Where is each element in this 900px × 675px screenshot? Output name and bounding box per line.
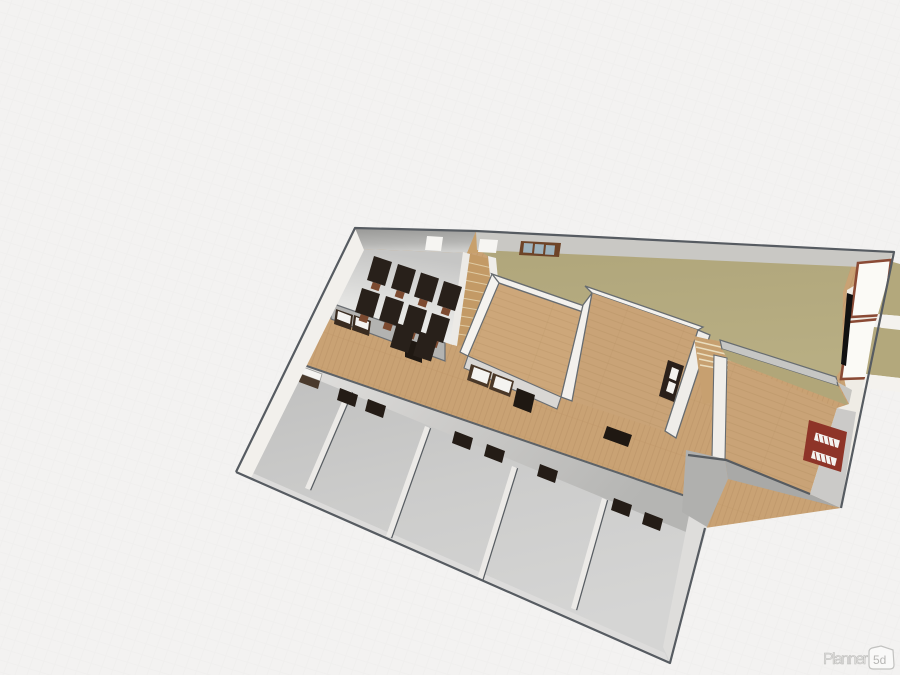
svg-text:5d: 5d <box>873 653 886 667</box>
svg-text:Planner: Planner <box>823 651 869 668</box>
